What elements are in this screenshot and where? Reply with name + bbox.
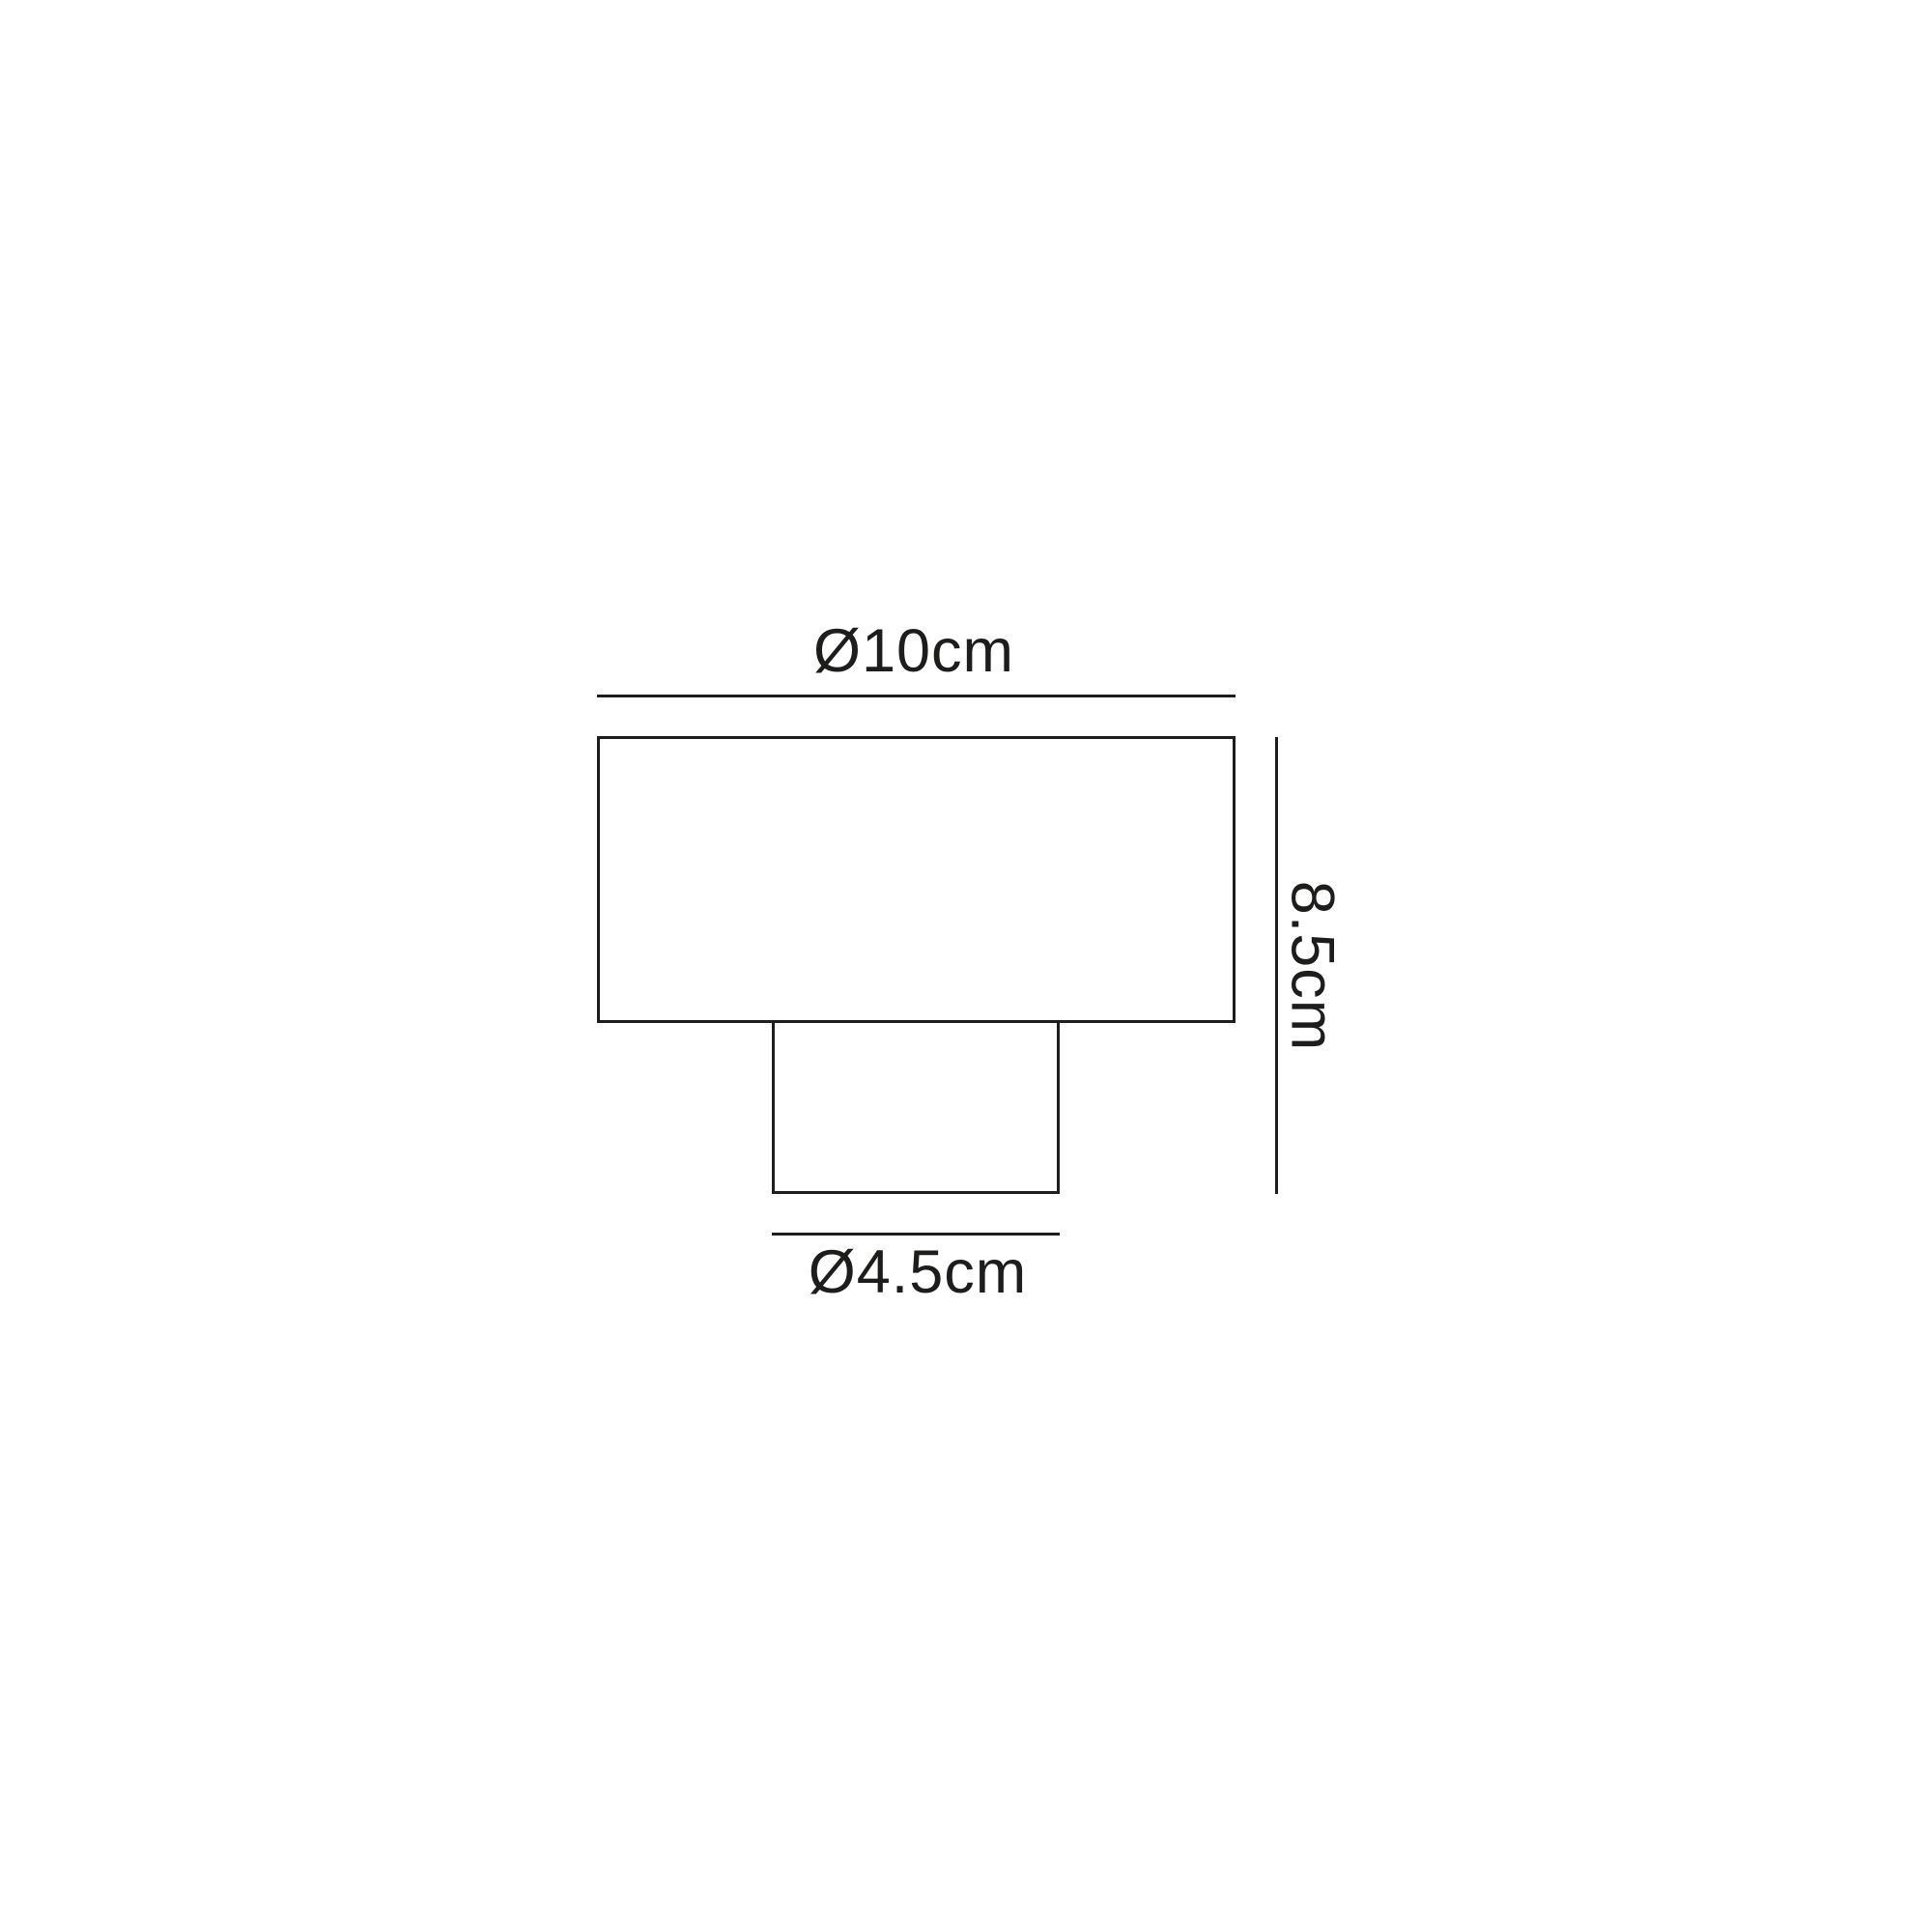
height-dimension-line	[1275, 737, 1278, 1194]
shade-outline	[597, 736, 1236, 1023]
base-dimension-line	[772, 1233, 1060, 1236]
product-dimension-diagram: Ø10cm 8.5cm Ø4.5cm	[0, 0, 1932, 1932]
base-outline	[772, 1023, 1060, 1194]
height-label: 8.5cm	[1282, 881, 1343, 1052]
top-diameter-label: Ø10cm	[813, 621, 1014, 682]
base-diameter-label: Ø4.5cm	[809, 1242, 1028, 1303]
top-dimension-line	[597, 695, 1236, 697]
